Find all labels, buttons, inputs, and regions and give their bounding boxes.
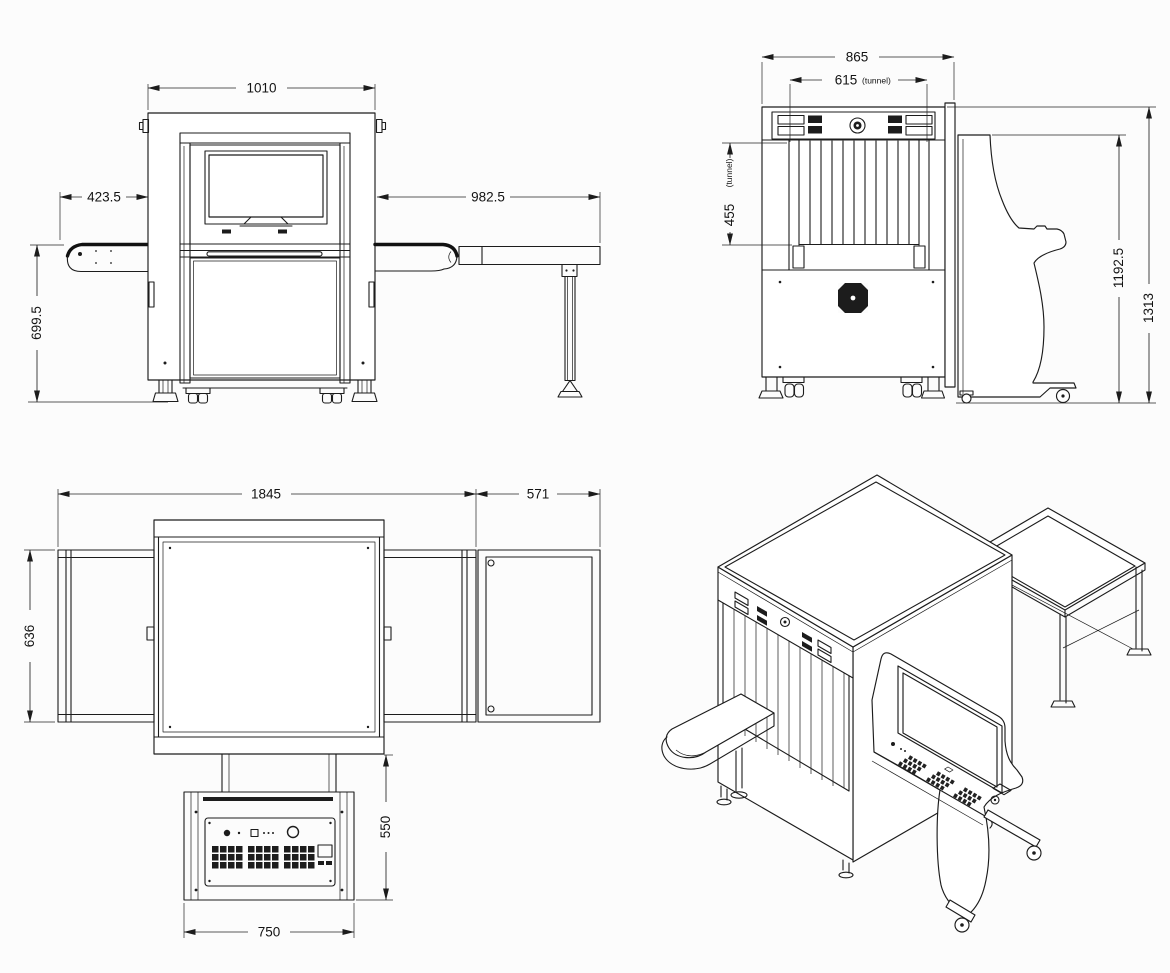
dim-label-1313: 1313 xyxy=(1141,293,1156,323)
cooling-fan xyxy=(838,283,868,313)
dim-label-455-note: (tunnel) xyxy=(724,158,734,187)
dim-label-865: 865 xyxy=(846,50,869,65)
keyboard-panel xyxy=(205,818,335,886)
dim-label-550: 550 xyxy=(378,816,393,839)
plan-cabinet xyxy=(147,520,391,754)
end-view: 865 615 (tunnel) 455 (tunnel) 1192.5 xyxy=(722,50,1156,404)
dim-front-infeed: 423.5 xyxy=(60,190,148,241)
dim-label-615-note: (tunnel) xyxy=(862,76,891,86)
dim-label-455: 455 xyxy=(722,204,737,227)
jog-knob xyxy=(288,827,299,838)
dim-front-outfeed: 982.5 xyxy=(377,190,600,244)
key-group-1 xyxy=(212,846,243,869)
plan-view: 1845 571 636 550 750 xyxy=(22,487,600,940)
infeed-conveyor xyxy=(67,245,148,272)
dim-plan-console-width: 750 xyxy=(184,903,354,940)
dim-label-1010: 1010 xyxy=(246,81,276,96)
plan-conveyor-right xyxy=(384,550,476,722)
dim-plan-conveyor-width: 636 xyxy=(22,550,55,722)
dim-label-750: 750 xyxy=(258,925,281,940)
dim-front-belt-height: 699.5 xyxy=(28,245,168,402)
dim-label-982-5: 982.5 xyxy=(471,190,505,205)
dim-front-overall-width: 1010 xyxy=(148,81,375,111)
dim-label-699-5: 699.5 xyxy=(29,306,44,340)
dim-label-571: 571 xyxy=(527,487,550,502)
dim-label-636: 636 xyxy=(22,625,37,648)
dim-plan-console-depth: 550 xyxy=(356,755,393,900)
dim-label-423-5: 423.5 xyxy=(87,190,121,205)
console-side-profile xyxy=(958,135,1076,403)
dim-plan-roller-table: 571 xyxy=(476,487,600,548)
plan-console xyxy=(184,754,354,900)
monitor xyxy=(205,151,327,226)
dim-label-1192-5: 1192.5 xyxy=(1111,248,1126,288)
key-group-3 xyxy=(284,846,315,869)
dim-label-1845: 1845 xyxy=(251,487,281,502)
power-button xyxy=(224,830,230,836)
isometric-view xyxy=(662,475,1151,932)
drawing-canvas: 1010 423.5 982.5 699.5 xyxy=(0,0,1170,973)
key-group-2 xyxy=(248,846,279,869)
plan-roller-table xyxy=(478,550,600,722)
end-feet xyxy=(759,377,945,398)
trackpad xyxy=(318,845,332,857)
outfeed-conveyor xyxy=(375,245,600,398)
front-view: 1010 423.5 982.5 699.5 xyxy=(28,81,600,404)
table-leg xyxy=(558,265,582,398)
plan-conveyor-left xyxy=(58,550,154,722)
dim-label-615: 615 xyxy=(835,73,858,88)
drawing-sheet: 1010 423.5 982.5 699.5 xyxy=(0,0,1170,973)
